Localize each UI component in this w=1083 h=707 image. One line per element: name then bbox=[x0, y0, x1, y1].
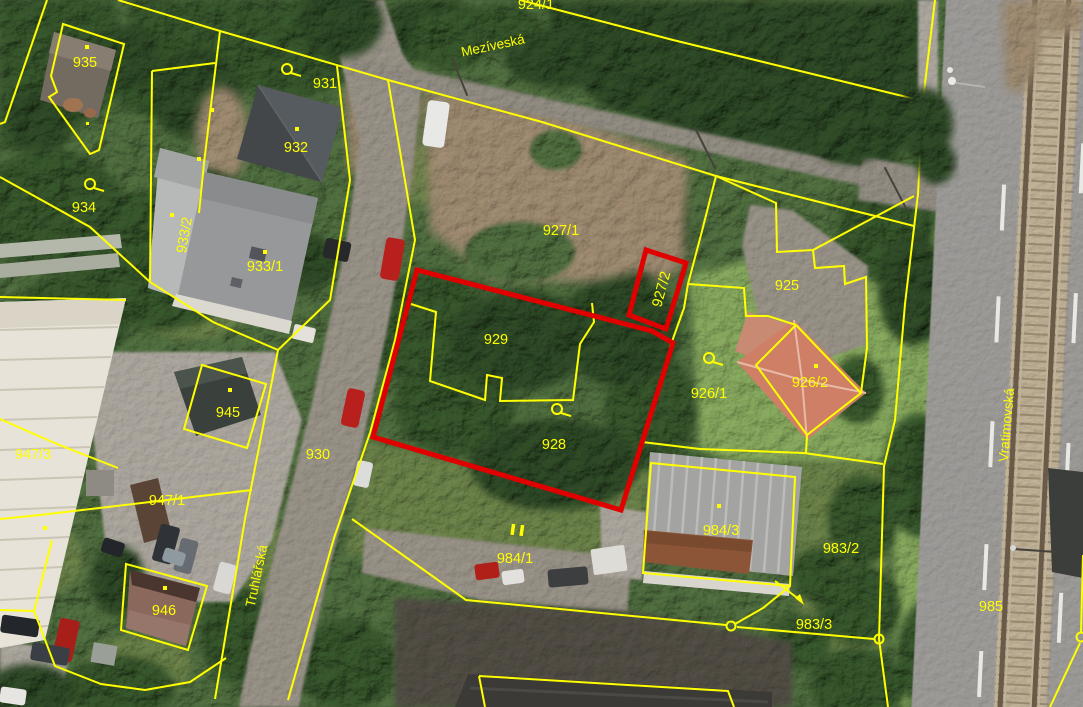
svg-text:931: 931 bbox=[313, 76, 337, 92]
svg-text:928: 928 bbox=[542, 437, 566, 453]
svg-text:933/1: 933/1 bbox=[247, 259, 283, 275]
svg-text:932: 932 bbox=[284, 140, 308, 156]
svg-text:946: 946 bbox=[152, 603, 176, 619]
svg-text:927/1: 927/1 bbox=[543, 223, 579, 239]
svg-text:929: 929 bbox=[484, 332, 508, 348]
svg-text:985: 985 bbox=[979, 599, 1003, 615]
svg-text:983/3: 983/3 bbox=[796, 617, 832, 633]
svg-text:925: 925 bbox=[775, 278, 799, 294]
svg-text:927/2: 927/2 bbox=[650, 270, 675, 309]
svg-text:945: 945 bbox=[216, 405, 240, 421]
svg-text:947/3: 947/3 bbox=[15, 447, 51, 463]
svg-text:947/1: 947/1 bbox=[149, 493, 185, 509]
svg-text:935: 935 bbox=[73, 55, 97, 71]
svg-text:926/1: 926/1 bbox=[691, 386, 727, 402]
svg-text:930: 930 bbox=[306, 447, 330, 463]
svg-text:924/1: 924/1 bbox=[518, 0, 554, 13]
svg-text:983/2: 983/2 bbox=[823, 541, 859, 557]
svg-text:984/1: 984/1 bbox=[497, 551, 533, 567]
svg-text:926/2: 926/2 bbox=[792, 375, 828, 391]
svg-text:Mezíveská: Mezíveská bbox=[460, 31, 527, 59]
svg-text:Truhlářská: Truhlářská bbox=[243, 543, 271, 608]
svg-text:Vratimovská: Vratimovská bbox=[996, 387, 1017, 462]
svg-text:984/3: 984/3 bbox=[703, 523, 739, 539]
svg-text:934: 934 bbox=[72, 200, 96, 216]
